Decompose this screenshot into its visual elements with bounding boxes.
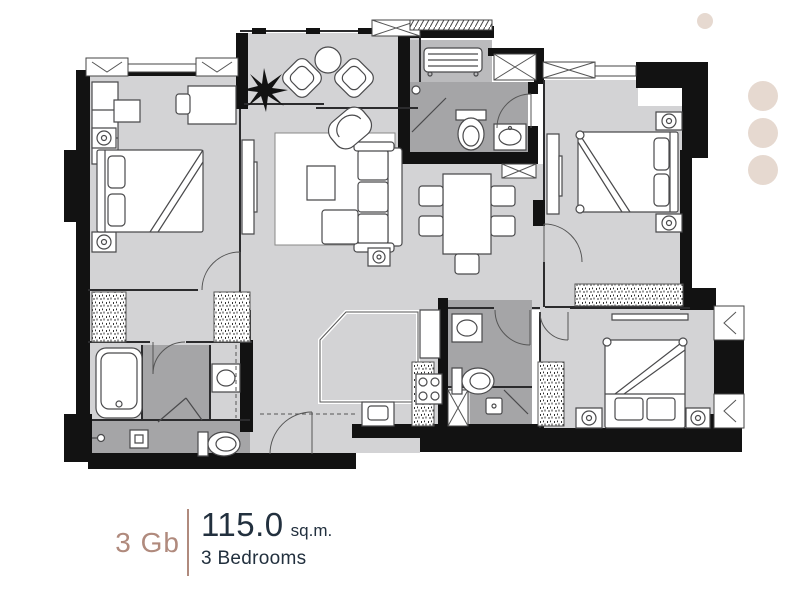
ac-grille: [410, 20, 492, 30]
deco-circle: [748, 81, 778, 111]
unit-type-label: 3 Gb: [58, 527, 180, 559]
sofa-cushion-icon: [358, 214, 388, 244]
window-bedroom1-b: [196, 58, 238, 76]
sofa-back-icon: [388, 148, 402, 246]
dining-chair-icon: [455, 254, 479, 274]
toilet-tank-icon: [198, 432, 208, 456]
pillow-icon: [108, 156, 125, 188]
dining-chair-icon: [419, 216, 443, 236]
window-bedroom3-a: [714, 306, 744, 340]
wall-hall-left: [240, 340, 253, 432]
wall-left-column-1: [64, 150, 78, 222]
shower-mixer-icon: [98, 435, 105, 442]
stove-icon: [416, 374, 442, 404]
fridge-icon: [420, 310, 440, 358]
bedrooms-label: 3 Bedrooms: [201, 548, 306, 570]
wall-left-column-2: [64, 414, 92, 462]
window-sill: [128, 64, 196, 72]
wardrobe-bedroom2: [575, 284, 683, 306]
round-table-icon: [315, 47, 341, 73]
pillow-icon: [615, 398, 643, 420]
wall-bedroom3-right: [714, 340, 744, 398]
desk-chair-icon: [176, 94, 190, 114]
pelmet-icon: [612, 314, 688, 320]
shower-control-icon: [486, 398, 502, 414]
wall-bath1-right-b: [528, 126, 538, 152]
wall-bottom-foyer: [420, 424, 544, 452]
sofa-cushion-icon: [358, 150, 388, 180]
area-value: 115.0: [201, 506, 284, 543]
dining-chair-icon: [491, 186, 515, 206]
wall-bottom-bedroom3: [540, 428, 704, 452]
wardrobe-bedroom3: [538, 362, 564, 426]
shower-control-icon: [130, 430, 148, 448]
deco-circle-small: [697, 13, 713, 29]
desk-icon: [188, 86, 236, 124]
shower-head-icon: [412, 86, 420, 94]
area-row: 115.0sq.m.: [201, 506, 332, 544]
dining-chair-icon: [419, 186, 443, 206]
sofa-cushion-icon: [358, 182, 388, 212]
deco-circle: [748, 155, 778, 185]
pillow-icon: [654, 138, 669, 170]
tv-icon: [254, 162, 257, 212]
floor-plan-page: 3 Gb 115.0sq.m. 3 Bedrooms: [0, 0, 800, 600]
floor-plan-drawing: [0, 0, 800, 600]
ottoman-icon: [322, 210, 358, 244]
pillow-icon: [647, 398, 675, 420]
sofa-arm-icon: [354, 142, 394, 151]
toilet-tank-icon: [452, 368, 462, 394]
toilet-icon: [208, 432, 240, 456]
toilet-icon: [458, 118, 484, 150]
dining-chair-icon: [491, 216, 515, 236]
tv-cabinet-icon: [547, 134, 559, 214]
pillow-icon: [108, 194, 125, 226]
coffee-table-icon: [307, 166, 335, 200]
wardrobe-master-left: [92, 292, 126, 342]
wall-bedroom2-door-stub: [533, 200, 545, 226]
tv-cabinet-icon: [242, 140, 254, 234]
side-table-icon: [114, 100, 140, 122]
toilet-icon: [462, 368, 494, 394]
window-bedroom1-a: [86, 58, 128, 76]
wall-bath1-bottom: [398, 152, 538, 164]
wardrobe-master-right: [214, 292, 250, 342]
area-unit: sq.m.: [291, 521, 333, 540]
wall-bath1-right-a: [528, 82, 538, 94]
wall-bath1-left: [398, 26, 410, 164]
window-bedroom3-b: [714, 394, 744, 428]
pillow-icon: [654, 174, 669, 206]
dining-table-icon: [443, 174, 491, 254]
master-shower-floor: [142, 345, 210, 420]
wall-right-upper: [682, 62, 708, 158]
kitchen-counter-block: [320, 312, 418, 402]
deco-circle: [748, 118, 778, 148]
label-divider: [187, 509, 189, 576]
ac-ledge: [424, 48, 482, 76]
tv-icon: [559, 156, 562, 196]
wall-bedroom3-step: [690, 288, 716, 310]
window-bedroom2-fixed: [595, 66, 636, 76]
wall-left: [76, 70, 90, 462]
deco-circles: [697, 13, 778, 185]
